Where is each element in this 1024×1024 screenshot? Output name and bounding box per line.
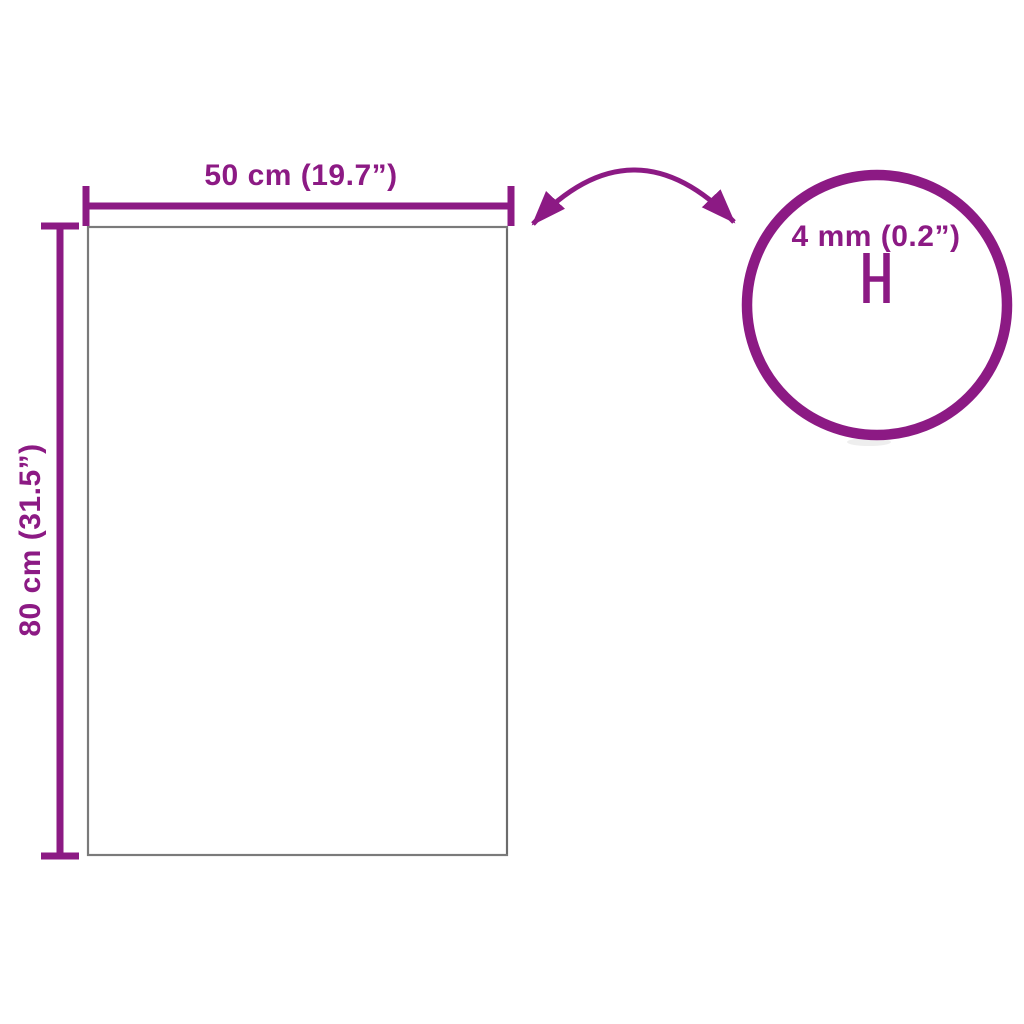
detail-circle [747, 175, 1007, 435]
width-dimension: 50 cm (19.7”) [86, 159, 511, 226]
height-dimension: 80 cm (31.5”) [14, 226, 79, 856]
panel-outline [88, 227, 507, 855]
diagram-canvas: 50 cm (19.7”) 80 cm (31.5”) 4 mm (0.2”) [0, 0, 1024, 1024]
thickness-dimension-label: 4 mm (0.2”) [792, 220, 961, 253]
height-dimension-label: 80 cm (31.5”) [14, 443, 47, 636]
product-dimension-diagram: 50 cm (19.7”) 80 cm (31.5”) 4 mm (0.2”) [0, 0, 1024, 1024]
zoom-detail-arrow [533, 170, 734, 224]
width-dimension-label: 50 cm (19.7”) [204, 159, 397, 192]
